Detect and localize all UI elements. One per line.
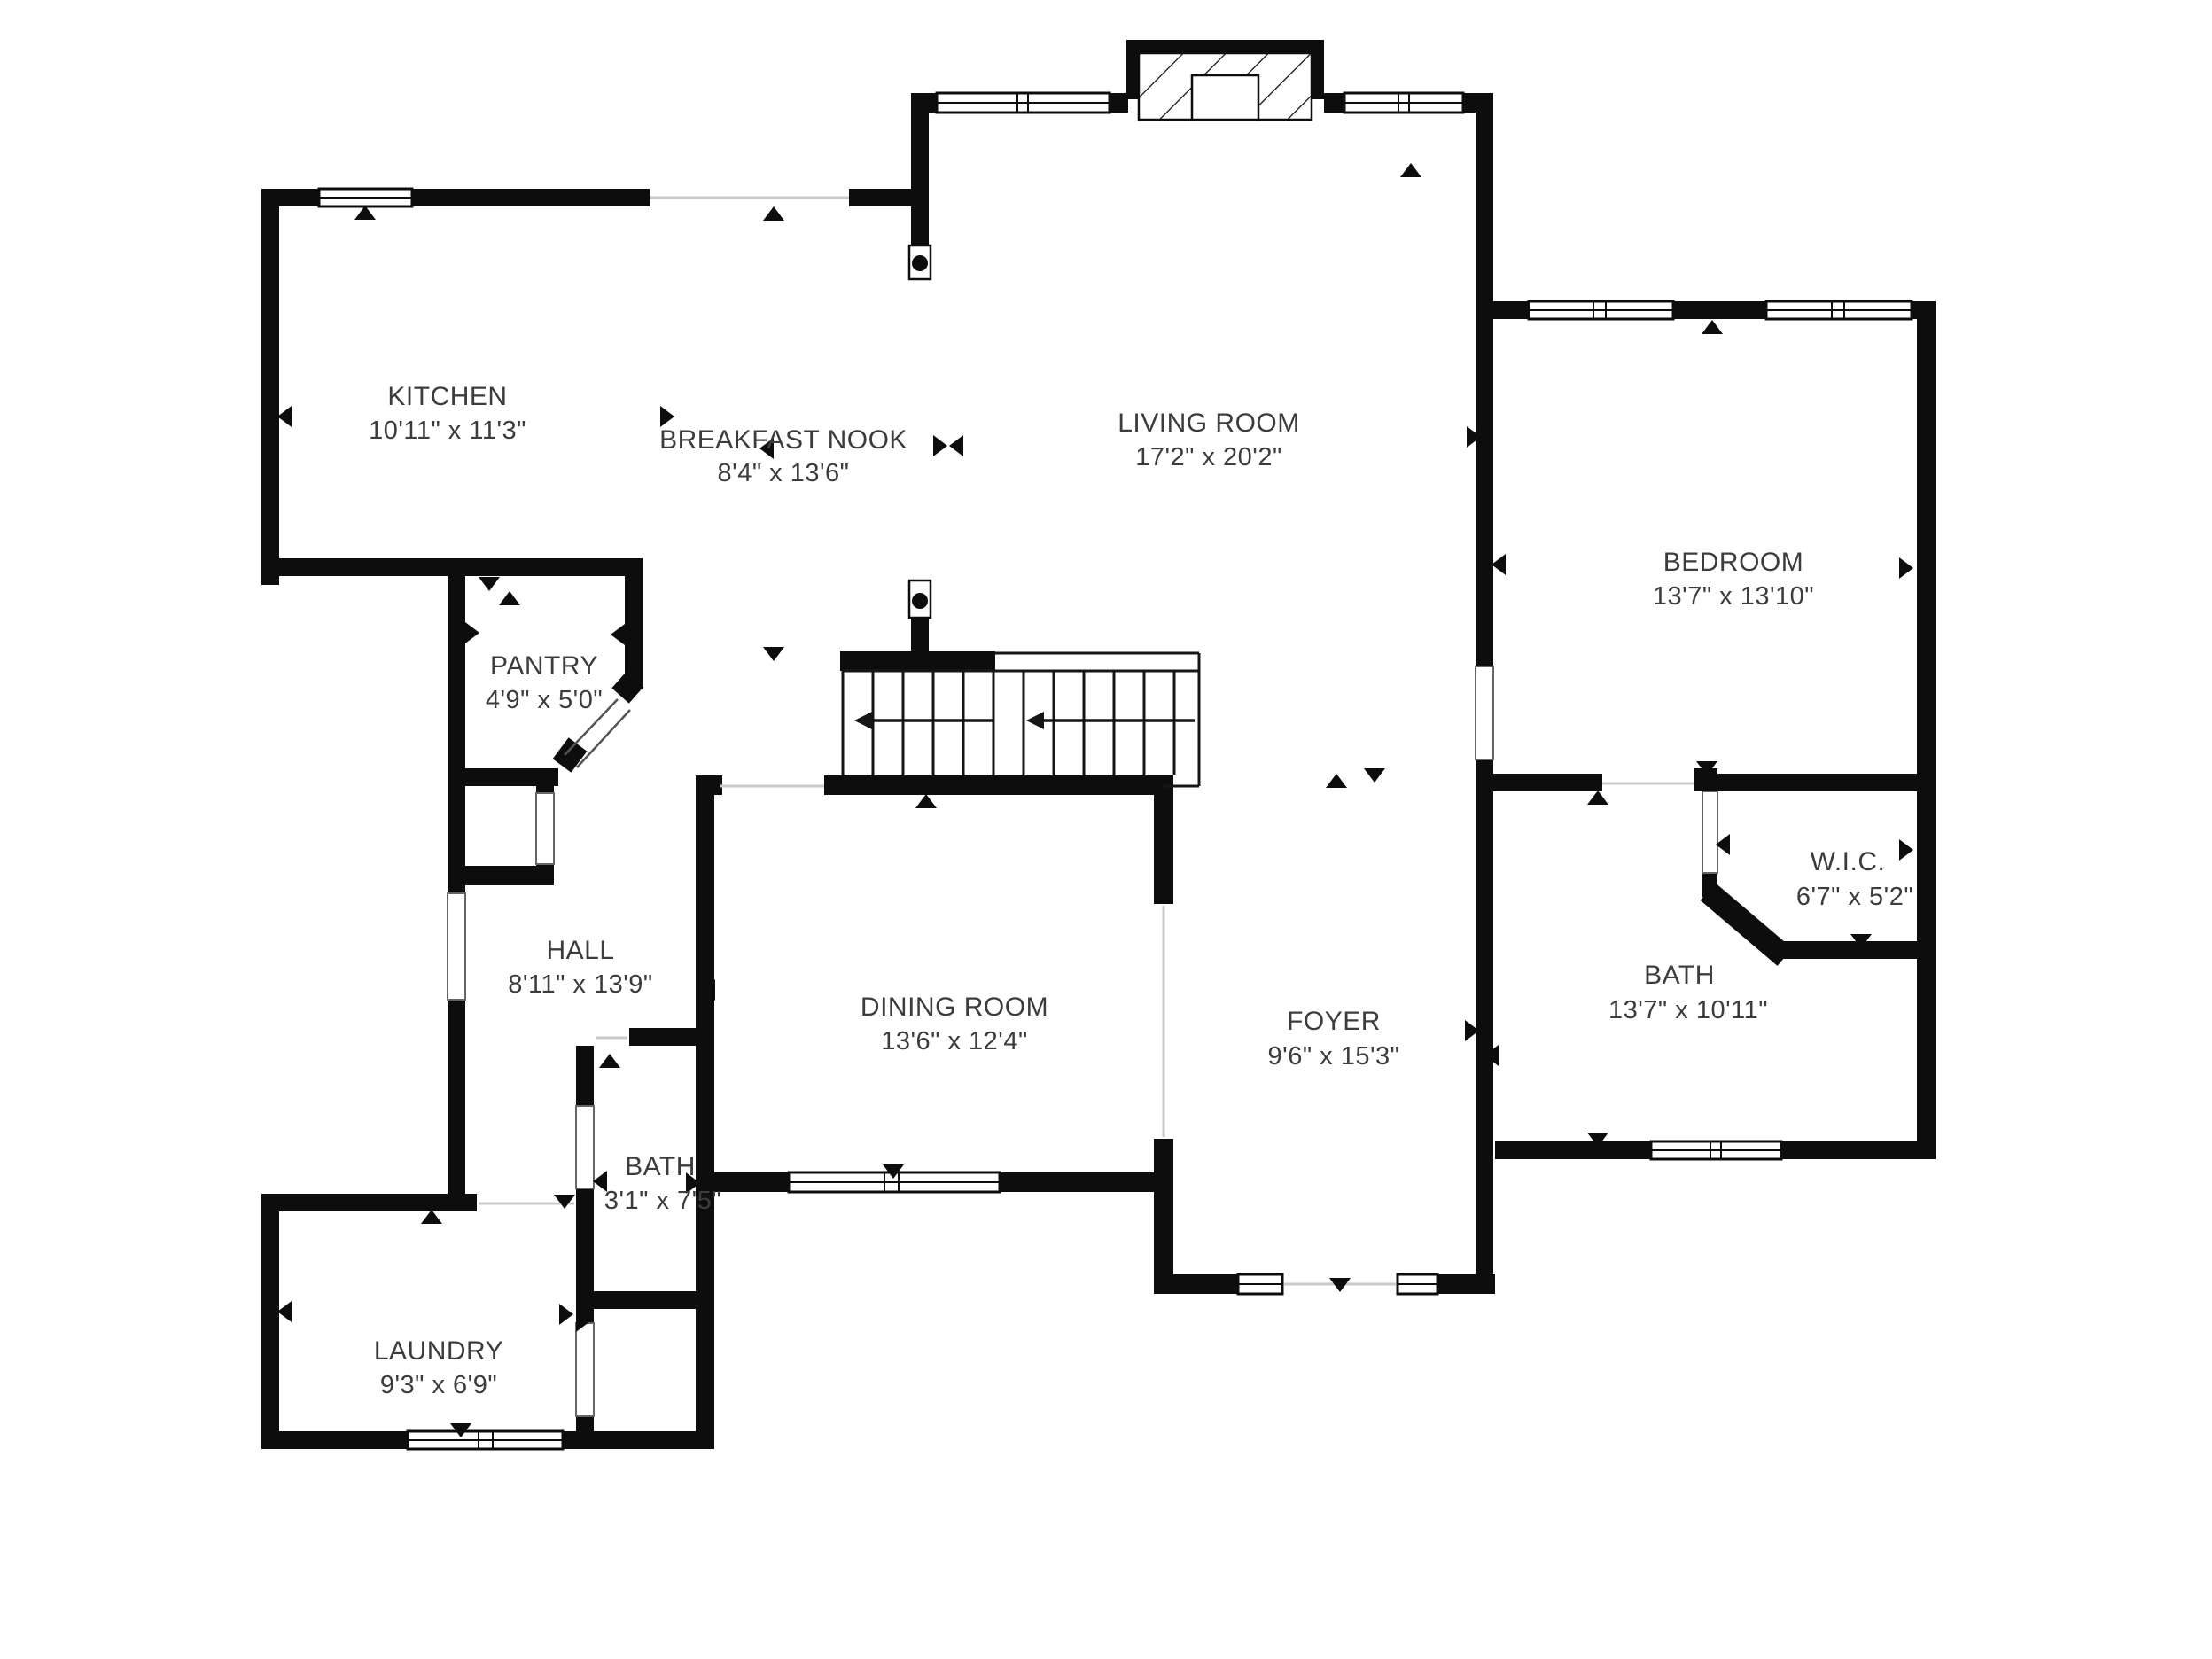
room-label-living-room: LIVING ROOM (1118, 409, 1300, 438)
window-symbol (319, 189, 412, 206)
floor-plan-drawing: KITCHEN 10'11" x 11'3" BREAKFAST NOOK 8'… (0, 0, 2212, 1659)
room-label-laundry: LAUNDRY (374, 1336, 503, 1366)
room-dims-bedroom: 13'7" x 13'10" (1653, 582, 1814, 611)
room-label-bedroom: BEDROOM (1663, 548, 1804, 577)
room-label-bath-hall: BATH (625, 1152, 696, 1181)
room-dims-bath-hall: 3'1" x 7'5" (604, 1187, 721, 1215)
fireplace (1126, 40, 1324, 120)
floor-plan-page: KITCHEN 10'11" x 11'3" BREAKFAST NOOK 8'… (0, 0, 2212, 1659)
window-symbol (1238, 1274, 1282, 1294)
room-label-hall: HALL (546, 936, 614, 965)
newel-post (909, 245, 931, 618)
window-symbol (408, 1431, 563, 1449)
room-dims-foyer: 9'6" x 15'3" (1268, 1042, 1400, 1071)
window-symbol (1398, 1274, 1437, 1294)
room-label-kitchen: KITCHEN (387, 382, 507, 411)
window-symbol (1529, 301, 1673, 319)
room-label-bath-primary: BATH (1644, 961, 1715, 990)
opening-threshold-lines (479, 198, 1694, 1284)
window-symbol (1766, 301, 1912, 319)
room-label-breakfast-nook: BREAKFAST NOOK (659, 425, 907, 455)
door-direction-ticks (277, 163, 1913, 1437)
room-dims-bath-primary: 13'7" x 10'11" (1608, 996, 1768, 1024)
room-dims-breakfast-nook: 8'4" x 13'6" (718, 459, 850, 487)
room-dims-living-room: 17'2" x 20'2" (1135, 443, 1282, 471)
staircase (842, 245, 1199, 786)
room-label-pantry: PANTRY (490, 651, 598, 681)
room-label-foyer: FOYER (1287, 1007, 1381, 1036)
room-labels: KITCHEN 10'11" x 11'3" BREAKFAST NOOK 8'… (369, 382, 1913, 1399)
room-label-dining-room: DINING ROOM (861, 993, 1048, 1022)
window-symbol (1344, 93, 1463, 113)
room-dims-dining-room: 13'6" x 12'4" (881, 1027, 1028, 1055)
window-symbol (1651, 1141, 1781, 1159)
room-dims-kitchen: 10'11" x 11'3" (369, 417, 526, 445)
room-dims-wic: 6'7" x 5'2" (1796, 883, 1913, 911)
window-symbol (937, 93, 1110, 113)
room-dims-laundry: 9'3" x 6'9" (380, 1371, 497, 1399)
exterior-and-interior-walls (261, 93, 1936, 1449)
room-dims-pantry: 4'9" x 5'0" (486, 686, 603, 714)
room-dims-hall: 8'11" x 13'9" (508, 970, 652, 999)
room-label-wic: W.I.C. (1811, 847, 1886, 876)
